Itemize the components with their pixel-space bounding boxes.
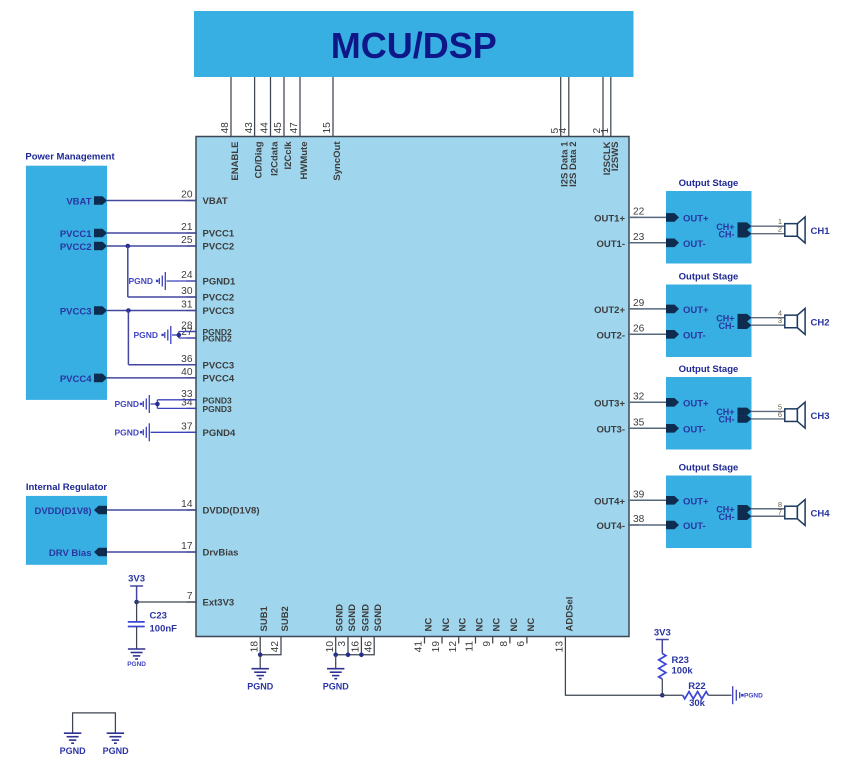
svg-text:47: 47	[289, 122, 300, 134]
svg-text:PGND: PGND	[114, 427, 139, 437]
svg-text:12: 12	[448, 641, 459, 653]
svg-text:31: 31	[181, 300, 193, 311]
svg-text:SGND: SGND	[373, 604, 384, 632]
svg-text:29: 29	[633, 298, 645, 309]
svg-text:11: 11	[465, 641, 476, 652]
svg-text:39: 39	[633, 490, 645, 501]
svg-text:SUB2: SUB2	[280, 606, 291, 631]
svg-text:NC: NC	[458, 618, 469, 632]
svg-text:18: 18	[249, 641, 260, 653]
svg-text:OUT3+: OUT3+	[594, 398, 625, 409]
svg-text:I2SWS: I2SWS	[610, 142, 621, 172]
svg-text:26: 26	[633, 324, 645, 335]
svg-text:OUT-: OUT-	[683, 239, 706, 250]
svg-text:30: 30	[181, 286, 193, 297]
svg-text:SUB1: SUB1	[259, 605, 270, 631]
svg-text:PVCC4: PVCC4	[203, 374, 235, 385]
svg-text:SyncOut: SyncOut	[332, 141, 343, 181]
svg-text:NC: NC	[526, 618, 537, 632]
svg-text:48: 48	[220, 122, 231, 134]
svg-text:PVCC2: PVCC2	[203, 242, 235, 253]
svg-text:I2Cclk: I2Cclk	[283, 141, 294, 170]
svg-text:CH-: CH-	[719, 512, 735, 522]
svg-text:Ext3V3: Ext3V3	[203, 598, 235, 609]
svg-text:DVDD(D1V8): DVDD(D1V8)	[34, 506, 91, 517]
svg-text:OUT1+: OUT1+	[594, 213, 625, 224]
svg-text:21: 21	[181, 222, 193, 233]
svg-text:SGND: SGND	[335, 604, 346, 632]
svg-text:30k: 30k	[689, 698, 706, 709]
svg-text:PGND: PGND	[60, 746, 87, 756]
svg-text:CH4: CH4	[811, 509, 831, 520]
svg-text:NC: NC	[424, 618, 435, 632]
svg-text:CH-: CH-	[719, 321, 735, 331]
svg-text:CH3: CH3	[811, 411, 830, 422]
svg-text:CH-: CH-	[719, 230, 735, 240]
svg-text:OUT+: OUT+	[683, 496, 709, 507]
svg-text:I2Cdata: I2Cdata	[270, 141, 281, 176]
svg-text:OUT4-: OUT4-	[597, 521, 626, 532]
svg-text:7: 7	[778, 507, 782, 516]
svg-text:OUT-: OUT-	[683, 424, 706, 435]
svg-text:NC: NC	[492, 618, 503, 632]
svg-text:15: 15	[322, 122, 333, 134]
svg-text:Output Stage: Output Stage	[679, 364, 739, 375]
svg-text:PGND4: PGND4	[203, 428, 236, 439]
svg-text:24: 24	[181, 270, 193, 281]
svg-text:PVCC4: PVCC4	[60, 374, 92, 385]
svg-text:PGND: PGND	[127, 661, 146, 668]
svg-text:2: 2	[778, 225, 782, 234]
svg-text:SGND: SGND	[360, 604, 371, 632]
svg-text:19: 19	[431, 641, 442, 653]
svg-text:PGND: PGND	[323, 682, 350, 692]
svg-text:45: 45	[273, 122, 284, 134]
svg-text:7: 7	[187, 591, 193, 602]
svg-text:DrvBias: DrvBias	[203, 548, 239, 559]
svg-text:35: 35	[633, 418, 645, 429]
svg-text:38: 38	[633, 514, 645, 525]
svg-text:23: 23	[633, 232, 645, 243]
svg-text:PGND1: PGND1	[203, 277, 236, 288]
svg-text:CH-: CH-	[719, 415, 735, 425]
svg-text:PGND: PGND	[114, 399, 139, 409]
svg-text:4: 4	[558, 128, 569, 134]
svg-text:OUT+: OUT+	[683, 305, 709, 316]
svg-text:PGND: PGND	[744, 693, 763, 700]
svg-text:25: 25	[181, 235, 193, 246]
svg-text:Internal Regulator: Internal Regulator	[26, 482, 108, 493]
svg-text:PGND: PGND	[128, 276, 153, 286]
svg-text:100k: 100k	[672, 666, 694, 677]
svg-text:3V3: 3V3	[654, 628, 671, 639]
svg-text:OUT3-: OUT3-	[597, 424, 626, 435]
svg-text:CH1: CH1	[811, 226, 831, 237]
svg-text:40: 40	[181, 367, 193, 378]
svg-text:SGND: SGND	[347, 604, 358, 632]
svg-text:10: 10	[325, 641, 336, 653]
svg-text:NC: NC	[475, 618, 486, 632]
svg-text:PVCC3: PVCC3	[60, 307, 92, 318]
svg-text:16: 16	[351, 641, 362, 653]
svg-text:PVCC1: PVCC1	[60, 229, 92, 240]
svg-text:22: 22	[633, 207, 645, 218]
svg-text:41: 41	[414, 641, 425, 653]
svg-text:VBAT: VBAT	[203, 196, 228, 207]
svg-text:OUT2+: OUT2+	[594, 305, 625, 316]
svg-text:43: 43	[244, 122, 255, 134]
svg-text:6: 6	[516, 641, 527, 647]
svg-text:PVCC2: PVCC2	[203, 293, 235, 304]
svg-text:Output Stage: Output Stage	[679, 178, 739, 189]
svg-text:OUT1-: OUT1-	[597, 239, 626, 250]
svg-text:I2S Data 2: I2S Data 2	[568, 142, 579, 187]
svg-text:R22: R22	[688, 681, 705, 692]
svg-text:Output Stage: Output Stage	[679, 463, 739, 474]
svg-text:PGND: PGND	[103, 746, 130, 756]
svg-text:8: 8	[499, 641, 510, 647]
svg-text:OUT-: OUT-	[683, 521, 706, 532]
svg-text:OUT4+: OUT4+	[594, 496, 625, 507]
svg-text:100nF: 100nF	[150, 624, 178, 635]
svg-text:CD/Diag: CD/Diag	[254, 141, 265, 178]
svg-text:37: 37	[181, 422, 193, 433]
svg-text:HWMute: HWMute	[299, 142, 310, 180]
svg-text:17: 17	[181, 541, 193, 552]
svg-text:6: 6	[778, 410, 782, 419]
svg-text:36: 36	[181, 354, 193, 365]
svg-text:20: 20	[181, 190, 193, 201]
svg-text:DRV Bias: DRV Bias	[49, 548, 92, 559]
svg-text:13: 13	[555, 641, 566, 653]
svg-text:R23: R23	[672, 655, 689, 666]
svg-text:DVDD(D1V8): DVDD(D1V8)	[203, 506, 260, 517]
svg-text:ADDSel: ADDSel	[564, 597, 575, 632]
svg-text:14: 14	[181, 499, 193, 510]
svg-text:PGND2: PGND2	[203, 334, 233, 344]
svg-text:OUT2-: OUT2-	[597, 330, 626, 341]
svg-text:NC: NC	[509, 618, 520, 632]
svg-text:44: 44	[260, 122, 271, 134]
svg-text:OUT+: OUT+	[683, 213, 709, 224]
svg-text:PVCC3: PVCC3	[203, 306, 235, 317]
svg-text:PGND: PGND	[133, 330, 158, 340]
svg-text:Output Stage: Output Stage	[679, 272, 739, 283]
svg-text:9: 9	[482, 641, 493, 647]
svg-text:OUT+: OUT+	[683, 398, 709, 409]
svg-text:PVCC1: PVCC1	[203, 229, 235, 240]
svg-text:PVCC3: PVCC3	[203, 360, 235, 371]
svg-text:CH2: CH2	[811, 317, 830, 328]
svg-text:Power Management: Power Management	[25, 152, 115, 163]
svg-text:PGND3: PGND3	[203, 404, 233, 414]
svg-text:1: 1	[600, 128, 611, 134]
svg-text:3: 3	[337, 641, 348, 647]
svg-text:OUT-: OUT-	[683, 330, 706, 341]
svg-text:3: 3	[778, 316, 782, 325]
svg-text:27: 27	[181, 327, 193, 338]
svg-text:3V3: 3V3	[128, 574, 145, 585]
svg-text:NC: NC	[441, 618, 452, 632]
svg-text:PVCC2: PVCC2	[60, 242, 92, 253]
svg-text:PGND: PGND	[247, 682, 274, 692]
svg-text:ENABLE: ENABLE	[230, 142, 241, 181]
svg-text:42: 42	[270, 641, 281, 653]
svg-text:32: 32	[633, 392, 645, 403]
svg-text:46: 46	[363, 641, 374, 653]
svg-text:C23: C23	[150, 611, 167, 622]
svg-text:MCU/DSP: MCU/DSP	[331, 25, 497, 66]
svg-text:VBAT: VBAT	[66, 197, 91, 208]
